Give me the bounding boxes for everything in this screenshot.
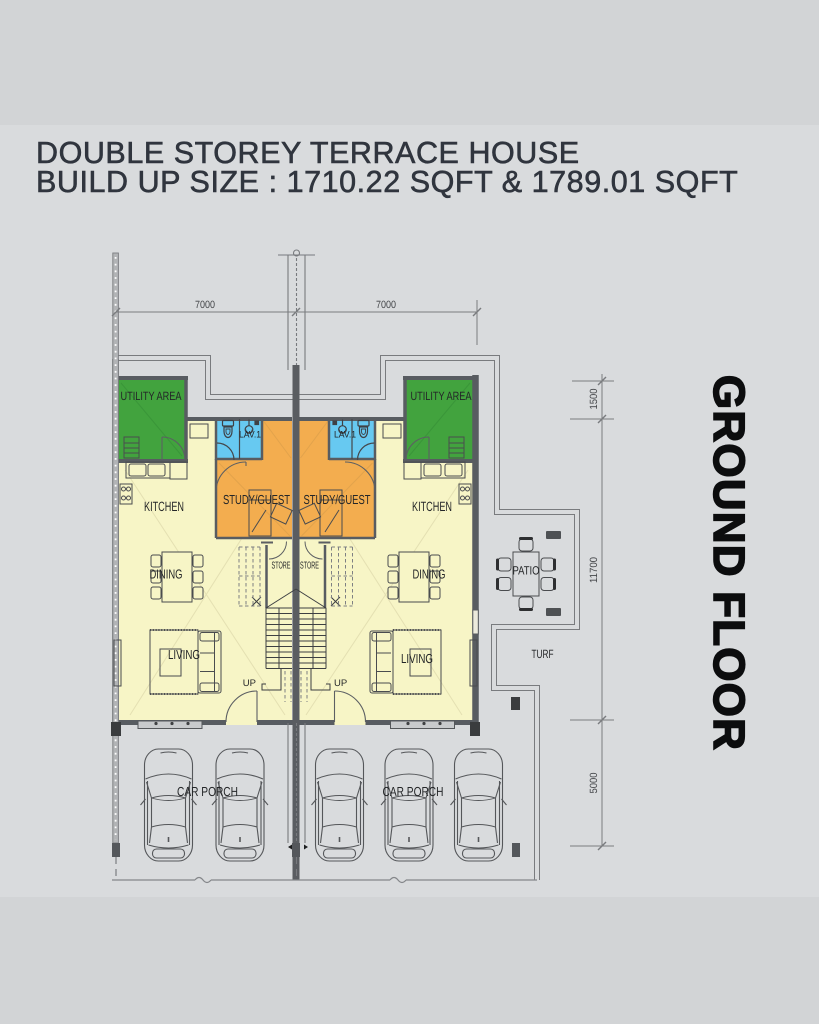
svg-text:CAR PORCH: CAR PORCH [177,784,238,799]
svg-text:KITCHEN: KITCHEN [144,499,184,514]
svg-text:7000: 7000 [376,299,396,311]
svg-text:UTILITY AREA: UTILITY AREA [121,389,182,403]
svg-text:LAV.1: LAV.1 [239,430,261,441]
svg-text:STORE: STORE [272,561,291,572]
svg-text:KITCHEN: KITCHEN [412,499,452,514]
svg-text:PATIO: PATIO [513,564,540,578]
svg-text:UP: UP [243,678,256,689]
svg-text:DINING: DINING [150,567,183,582]
svg-text:STUDY/GUEST: STUDY/GUEST [223,492,290,507]
svg-text:TURF: TURF [532,647,554,661]
svg-text:7000: 7000 [195,299,215,311]
svg-text:UP: UP [334,678,347,689]
svg-text:CAR PORCH: CAR PORCH [383,784,444,799]
svg-text:11700: 11700 [588,557,600,583]
svg-text:LAV.1: LAV.1 [334,430,356,441]
svg-text:STUDY/GUEST: STUDY/GUEST [304,492,371,507]
svg-text:STORE: STORE [300,561,319,572]
svg-text:DINING: DINING [413,567,446,582]
svg-text:UTILITY AREA: UTILITY AREA [411,389,472,403]
svg-text:LIVING: LIVING [401,651,433,666]
svg-text:5000: 5000 [588,772,600,793]
svg-text:1500: 1500 [588,388,600,409]
svg-text:LIVING: LIVING [168,647,200,662]
